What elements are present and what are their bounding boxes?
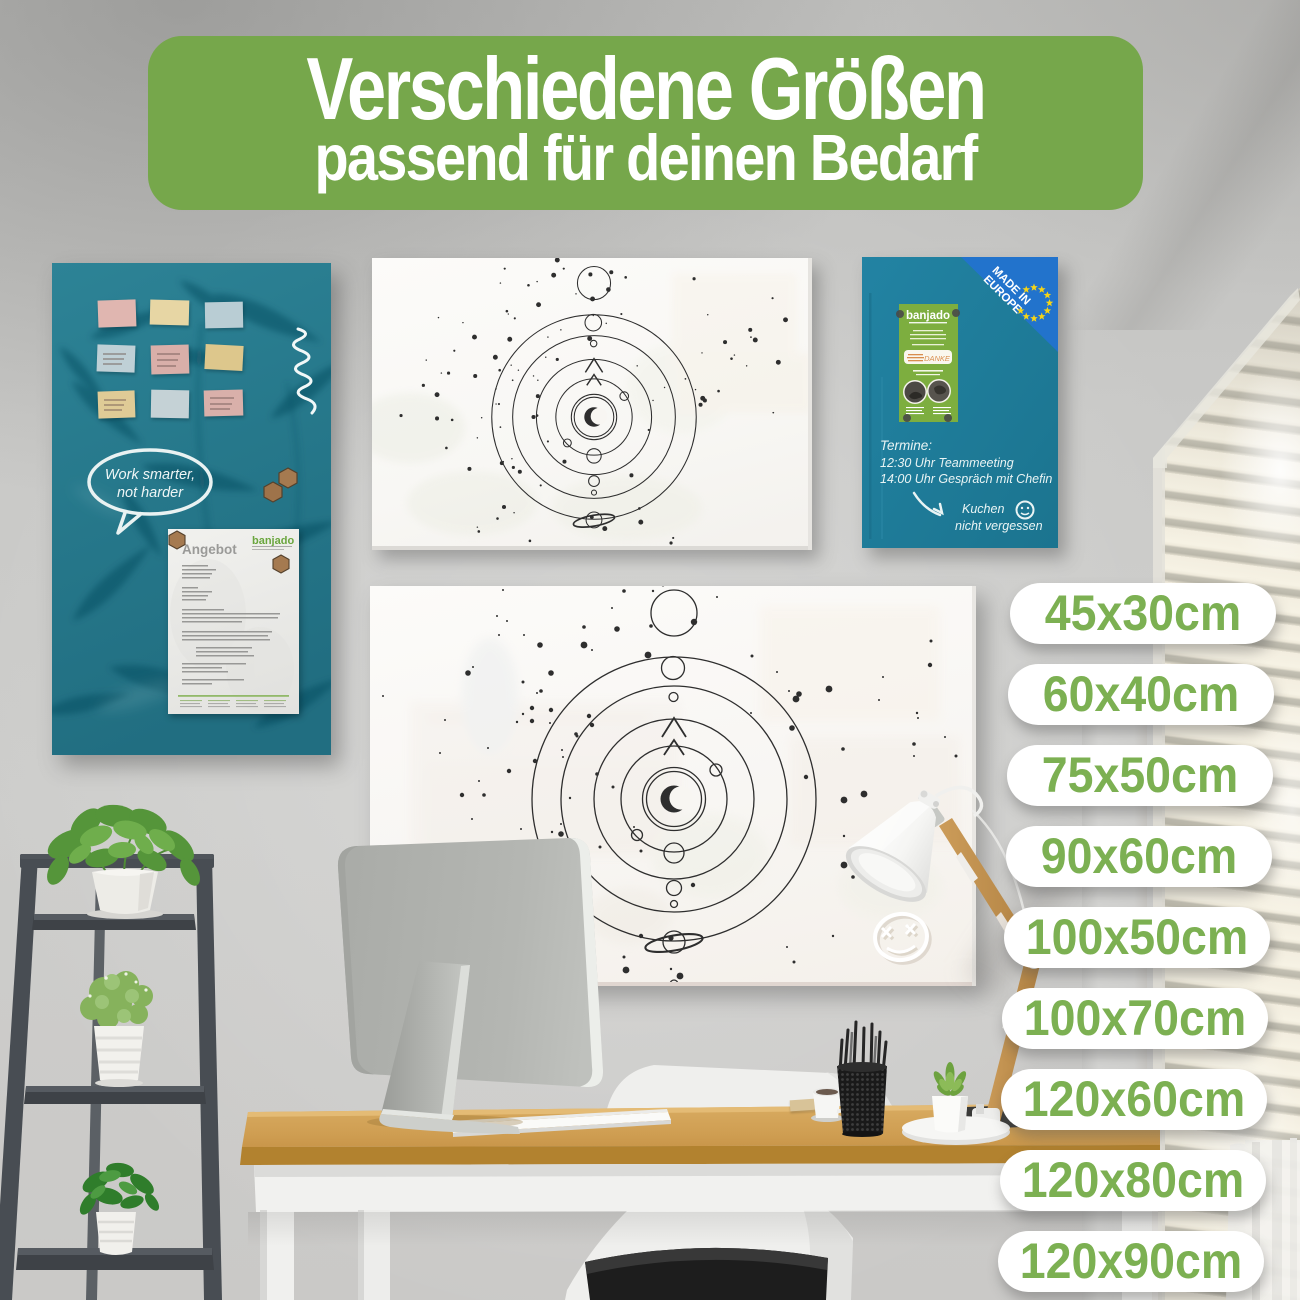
svg-text:Work smarter,: Work smarter, bbox=[105, 467, 195, 483]
svg-text:12:30 Uhr Teammeeting: 12:30 Uhr Teammeeting bbox=[880, 456, 1014, 470]
svg-text:nicht vergessen: nicht vergessen bbox=[955, 519, 1043, 533]
svg-text:not harder: not harder bbox=[117, 485, 184, 501]
svg-text:Termine:: Termine: bbox=[880, 438, 932, 453]
svg-text:14:00 Uhr Gespräch mit Chefin: 14:00 Uhr Gespräch mit Chefin bbox=[880, 472, 1052, 486]
svg-text:Angebot: Angebot bbox=[182, 542, 237, 557]
svg-text:banjado: banjado bbox=[252, 535, 294, 547]
svg-text:banjado: banjado bbox=[906, 310, 950, 322]
svg-text:Kuchen: Kuchen bbox=[962, 502, 1004, 516]
svg-text:DANKE: DANKE bbox=[924, 354, 951, 363]
